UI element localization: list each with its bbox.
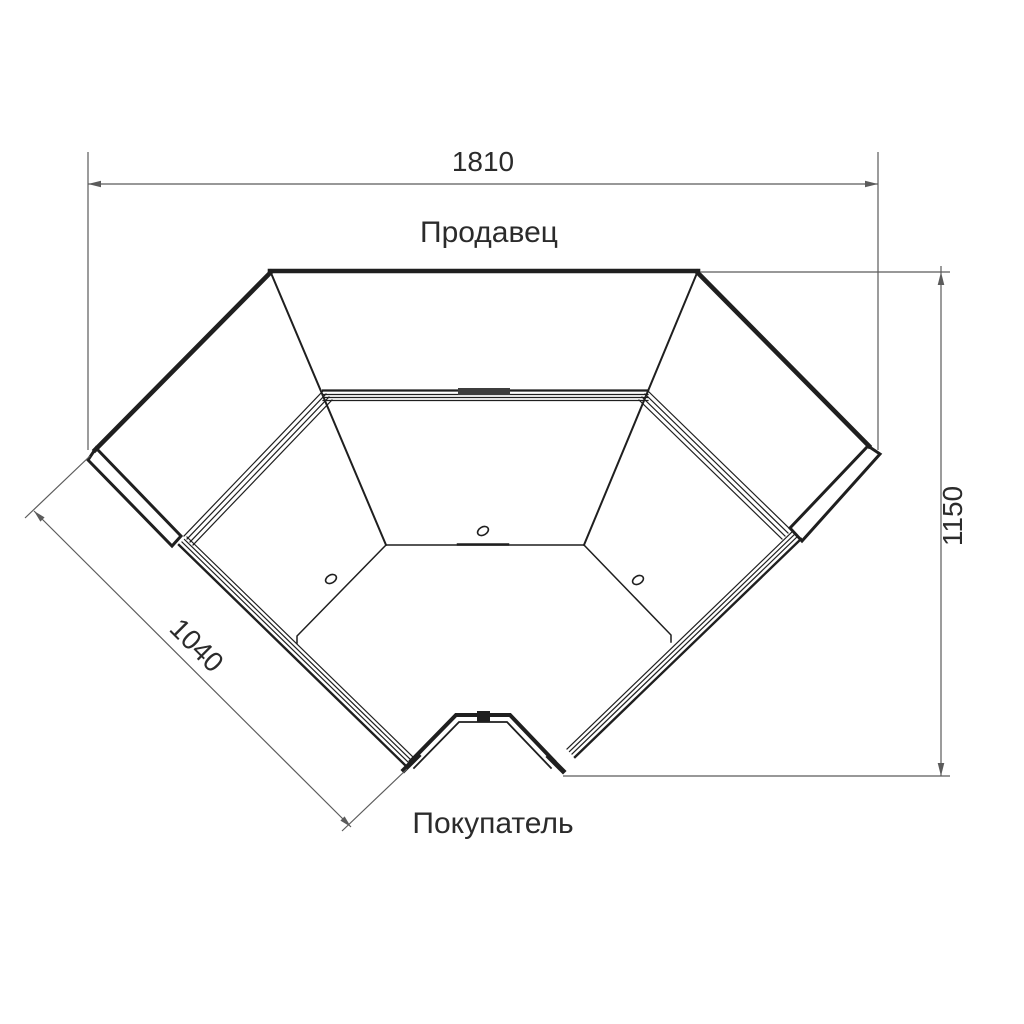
right-inner-band	[639, 391, 791, 539]
drain-holes	[324, 525, 645, 587]
deck-front-left-diagonal	[297, 545, 386, 643]
dimension-left-depth: 1040	[25, 456, 407, 831]
dimension-left-depth-value: 1040	[164, 612, 230, 678]
notch-inner-outline	[414, 722, 551, 768]
back-band-center-mark	[458, 388, 510, 395]
back-right-edge	[697, 272, 869, 446]
left-band-end-cap	[404, 756, 418, 770]
glass-line	[570, 534, 796, 752]
deck-left-side-edge	[271, 273, 386, 545]
band-line	[642, 397, 785, 536]
dimension-right-height-value: 1150	[937, 486, 968, 546]
arrowhead	[938, 763, 945, 776]
extension-line	[342, 769, 407, 831]
front-corner-notch	[404, 711, 563, 771]
back-counter-band	[323, 388, 648, 401]
band-line	[645, 394, 788, 533]
notch-center-clip	[477, 711, 490, 722]
right-glass-front-band	[567, 531, 801, 757]
counter-outer-outline	[95, 271, 869, 450]
arrowhead	[938, 272, 945, 285]
arrowhead	[865, 181, 878, 188]
dimension-top-width-value: 1810	[452, 146, 514, 177]
left-end-panel	[88, 448, 181, 546]
glass-line	[567, 531, 793, 749]
band-line	[648, 391, 791, 530]
band-line	[187, 394, 326, 539]
drain-hole-center	[476, 525, 490, 538]
counter-body	[88, 271, 880, 771]
right-end-panel	[790, 446, 880, 541]
deck-front-right-diagonal	[584, 545, 671, 642]
back-left-edge	[95, 272, 271, 450]
band-line	[193, 400, 332, 545]
zone-labels: Продавец Покупатель	[412, 216, 573, 840]
deck-edge-lines	[271, 273, 697, 643]
buyer-side-label: Покупатель	[412, 807, 573, 840]
dimension-top-width: 1810	[88, 146, 878, 450]
band-line	[184, 391, 323, 536]
arrowhead	[88, 181, 101, 188]
drain-hole-right	[631, 574, 645, 587]
band-line	[190, 397, 329, 542]
corner-counter-plan-page: 1810 1150 1040 Продавец Покупатель	[0, 0, 1024, 1024]
left-inner-band	[184, 391, 332, 545]
drain-hole-left	[324, 573, 338, 586]
band-line	[639, 400, 782, 539]
corner-counter-plan-drawing: 1810 1150 1040 Продавец Покупатель	[0, 0, 1024, 1024]
deck-right-side-edge	[584, 273, 697, 545]
seller-side-label: Продавец	[420, 216, 558, 249]
extension-line	[25, 456, 90, 518]
